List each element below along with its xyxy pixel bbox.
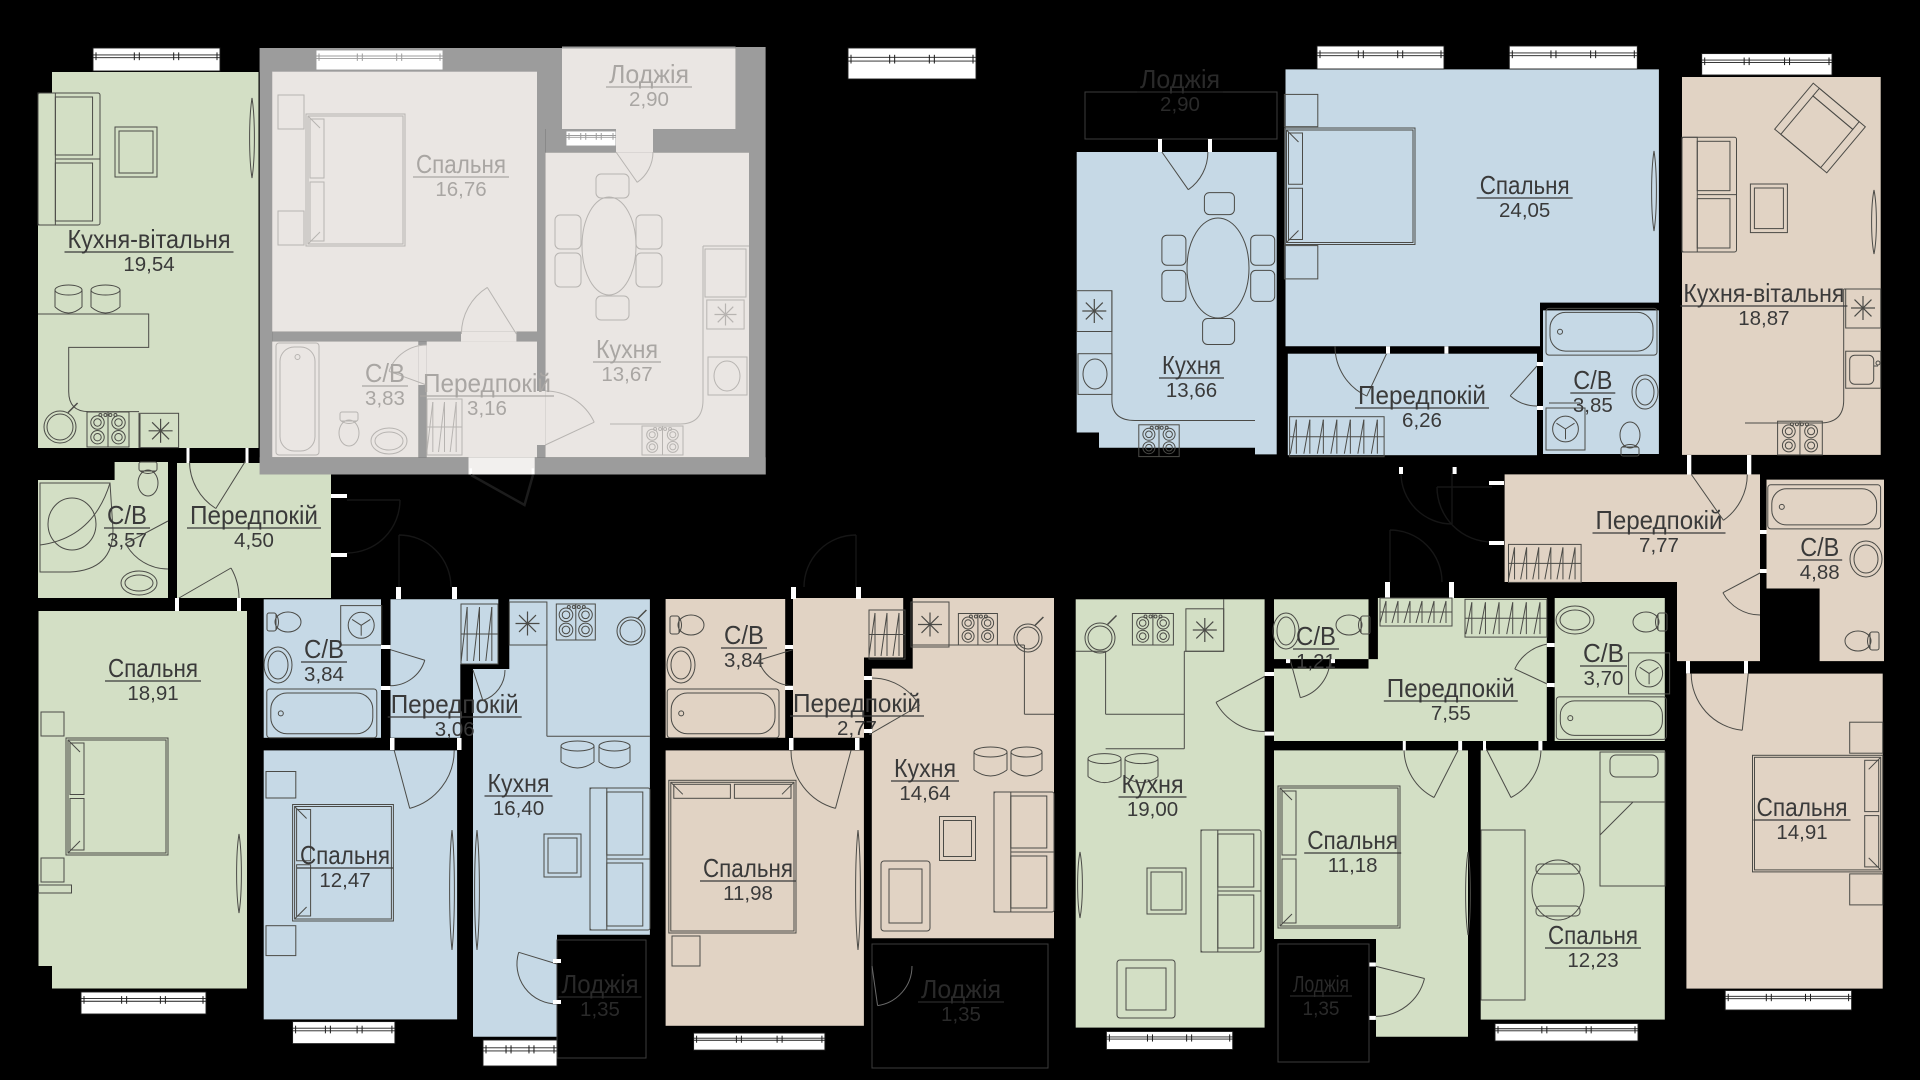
svg-text:19,00: 19,00 <box>1127 798 1178 821</box>
svg-text:7,77: 7,77 <box>1639 534 1679 557</box>
svg-text:Спальня: Спальня <box>703 853 793 883</box>
svg-text:Передпокій: Передпокій <box>793 688 921 718</box>
svg-text:7,55: 7,55 <box>1431 702 1471 725</box>
svg-text:3,83: 3,83 <box>365 387 405 410</box>
svg-text:3,16: 3,16 <box>467 397 507 420</box>
svg-text:2,90: 2,90 <box>629 88 669 111</box>
svg-text:2,77: 2,77 <box>837 717 877 740</box>
svg-text:С/В: С/В <box>1573 365 1612 395</box>
svg-text:Передпокій: Передпокій <box>1596 505 1723 535</box>
svg-text:С/В: С/В <box>107 500 147 530</box>
svg-text:14,64: 14,64 <box>899 782 950 805</box>
svg-text:2,90: 2,90 <box>1160 93 1200 116</box>
svg-text:Кухня: Кухня <box>1162 350 1221 380</box>
svg-text:Передпокій: Передпокій <box>423 368 551 398</box>
svg-text:Спальня: Спальня <box>108 653 198 683</box>
svg-text:С/В: С/В <box>365 358 405 388</box>
svg-text:Кухня-вітальня: Кухня-вітальня <box>68 224 231 254</box>
svg-text:24,05: 24,05 <box>1499 199 1550 222</box>
svg-text:С/В: С/В <box>1296 621 1336 651</box>
svg-text:16,40: 16,40 <box>493 797 544 820</box>
svg-text:13,66: 13,66 <box>1166 379 1217 402</box>
svg-text:3,57: 3,57 <box>107 529 147 552</box>
svg-text:19,54: 19,54 <box>123 253 174 276</box>
svg-text:Передпокій: Передпокій <box>190 500 318 530</box>
svg-text:Кухня: Кухня <box>488 768 550 798</box>
svg-text:3,06: 3,06 <box>435 718 475 741</box>
svg-text:Спальня: Спальня <box>1548 920 1638 950</box>
svg-text:Лоджія: Лоджія <box>562 969 639 999</box>
svg-text:С/В: С/В <box>1583 638 1624 668</box>
svg-text:Спальня: Спальня <box>300 840 390 870</box>
svg-text:Кухня: Кухня <box>894 753 956 783</box>
svg-text:3,70: 3,70 <box>1584 667 1624 690</box>
svg-text:16,76: 16,76 <box>435 178 486 201</box>
svg-text:1,35: 1,35 <box>941 1003 981 1026</box>
svg-text:Спальня: Спальня <box>1757 792 1848 822</box>
svg-text:3,84: 3,84 <box>304 663 344 686</box>
svg-text:6,26: 6,26 <box>1402 409 1442 432</box>
svg-text:1,35: 1,35 <box>1303 999 1340 1020</box>
svg-text:Лоджія: Лоджія <box>921 974 1001 1004</box>
svg-text:12,23: 12,23 <box>1567 949 1618 972</box>
svg-text:3,85: 3,85 <box>1573 394 1613 417</box>
svg-text:Спальня: Спальня <box>1480 170 1570 200</box>
svg-text:3,84: 3,84 <box>724 649 764 672</box>
svg-text:4,88: 4,88 <box>1800 561 1840 584</box>
svg-text:Лоджія: Лоджія <box>1140 64 1220 94</box>
svg-text:11,98: 11,98 <box>723 882 773 905</box>
svg-text:Спальня: Спальня <box>416 149 506 179</box>
svg-text:С/В: С/В <box>724 620 764 650</box>
svg-text:Лоджія: Лоджія <box>1293 971 1349 997</box>
svg-text:12,47: 12,47 <box>319 869 370 892</box>
svg-text:Спальня: Спальня <box>1307 825 1398 855</box>
svg-text:18,87: 18,87 <box>1738 307 1789 330</box>
svg-text:18,91: 18,91 <box>127 682 178 705</box>
svg-text:Лоджія: Лоджія <box>609 59 689 89</box>
svg-text:11,18: 11,18 <box>1328 854 1378 877</box>
svg-text:С/В: С/В <box>1800 532 1839 562</box>
svg-text:С/В: С/В <box>304 634 344 664</box>
svg-text:Кухня: Кухня <box>596 334 658 364</box>
svg-text:Передпокій: Передпокій <box>1387 673 1515 703</box>
svg-text:Передпокій: Передпокій <box>391 689 519 719</box>
svg-text:Кухня: Кухня <box>1122 769 1184 799</box>
svg-text:1,35: 1,35 <box>580 998 620 1021</box>
svg-text:14,91: 14,91 <box>1776 821 1827 844</box>
svg-text:13,67: 13,67 <box>601 363 652 386</box>
svg-text:4,50: 4,50 <box>234 529 274 552</box>
svg-text:Кухня-вітальня: Кухня-вітальня <box>1683 278 1844 308</box>
svg-text:Передпокій: Передпокій <box>1358 380 1486 410</box>
